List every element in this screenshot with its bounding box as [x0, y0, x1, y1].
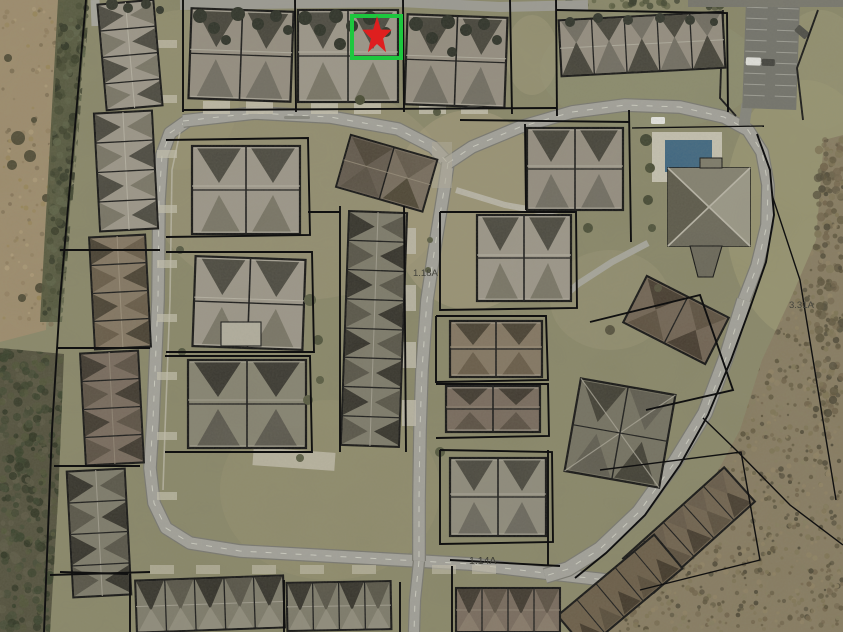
svg-text:1.18A: 1.18A: [413, 268, 438, 279]
svg-text:3.31A: 3.31A: [789, 300, 814, 311]
svg-text:1.14A: 1.14A: [469, 555, 496, 567]
